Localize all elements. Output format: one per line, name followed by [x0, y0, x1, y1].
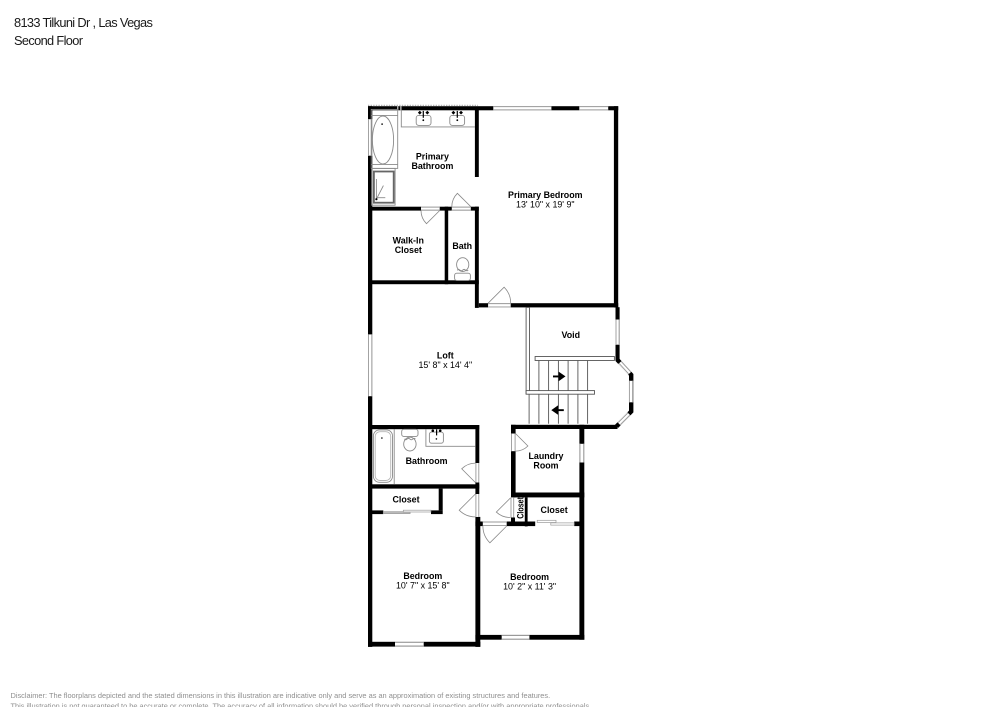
svg-text:Second Floor: Second Floor	[14, 33, 84, 48]
svg-text:Primary Bedroom: Primary Bedroom	[508, 190, 583, 200]
svg-text:Closet: Closet	[541, 505, 568, 515]
svg-text:Bedroom: Bedroom	[510, 572, 549, 582]
svg-text:Bedroom: Bedroom	[403, 571, 442, 581]
svg-text:Bathroom: Bathroom	[411, 161, 453, 171]
svg-text:Walk-In: Walk-In	[393, 236, 424, 246]
svg-text:13' 10" x 19' 9": 13' 10" x 19' 9"	[516, 200, 575, 210]
svg-text:Closet: Closet	[515, 497, 525, 519]
svg-text:Bathroom: Bathroom	[406, 456, 448, 466]
svg-text:Bath: Bath	[452, 241, 472, 251]
svg-text:10' 7" x 15' 8": 10' 7" x 15' 8"	[396, 581, 450, 591]
svg-text:Closet: Closet	[392, 495, 419, 505]
svg-text:This illustration is not guara: This illustration is not guaranteed to b…	[11, 702, 592, 707]
svg-text:15' 8" x 14' 4": 15' 8" x 14' 4"	[418, 360, 472, 370]
svg-text:Loft: Loft	[437, 350, 454, 360]
svg-text:Closet: Closet	[395, 245, 422, 255]
svg-text:Laundry: Laundry	[528, 451, 563, 461]
svg-text:10' 2" x 11' 3": 10' 2" x 11' 3"	[503, 581, 556, 591]
svg-text:8133 Tilkuni Dr , Las Vegas: 8133 Tilkuni Dr , Las Vegas	[14, 15, 152, 30]
svg-text:Void: Void	[562, 330, 581, 340]
svg-text:Disclaimer: The floorplans dep: Disclaimer: The floorplans depicted and …	[11, 691, 551, 700]
svg-text:Primary: Primary	[416, 152, 449, 162]
svg-text:Room: Room	[533, 461, 558, 471]
